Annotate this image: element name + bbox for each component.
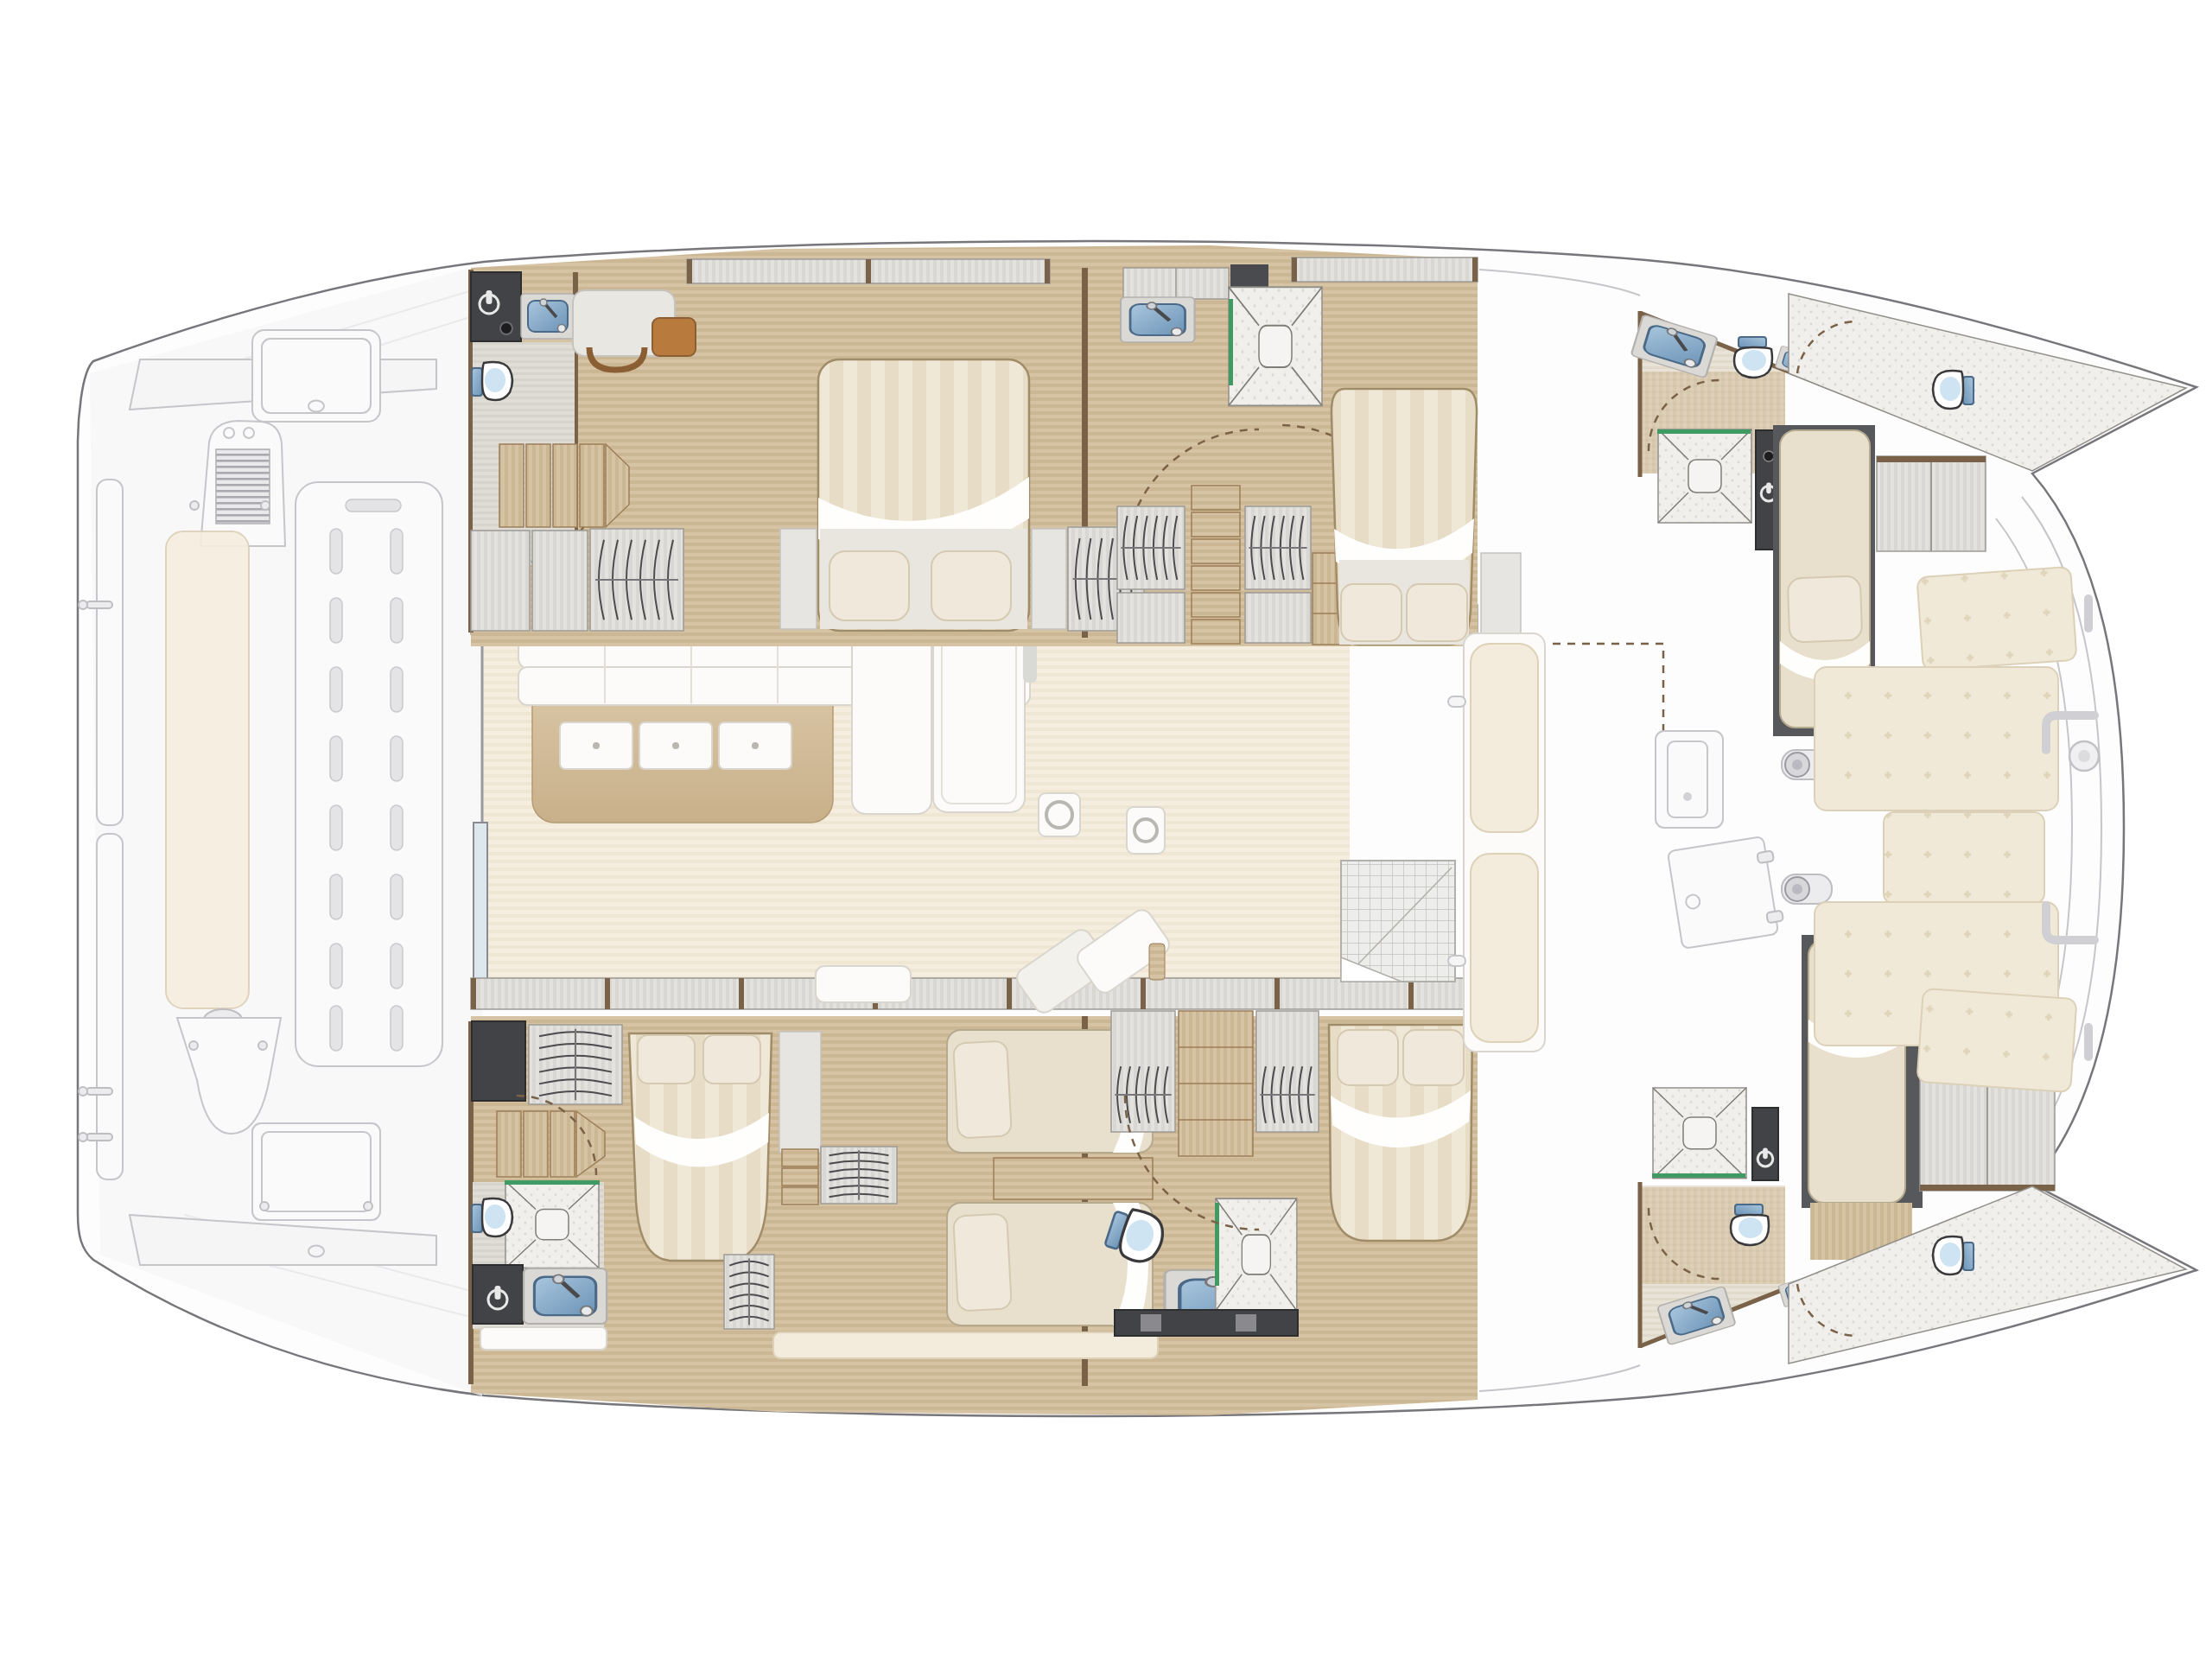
cabinet <box>471 531 530 631</box>
pillow <box>1403 1030 1464 1085</box>
wardrobe <box>590 529 683 631</box>
wc <box>1734 337 1772 378</box>
chair <box>652 318 696 356</box>
shelf <box>480 1327 607 1350</box>
sunpad <box>1916 988 2076 1092</box>
double-berth <box>1329 1025 1472 1241</box>
wet-locker <box>1752 1108 1778 1180</box>
deck-cabinet <box>1656 731 1723 828</box>
basin <box>524 1268 607 1324</box>
island-drawers <box>560 722 791 769</box>
sunpad <box>1916 567 2076 671</box>
cabinet <box>1117 593 1185 643</box>
catamaran-deck-plan <box>0 0 2212 1659</box>
sunpad-bench <box>1884 812 2044 904</box>
pillow <box>931 551 1011 620</box>
nightstand <box>1032 529 1066 629</box>
pillow <box>829 551 909 620</box>
locker <box>472 1021 525 1101</box>
basin <box>1121 297 1195 342</box>
wardrobe <box>1877 456 1986 551</box>
wardrobe <box>529 1025 622 1104</box>
hull-side-bench <box>773 1332 1158 1358</box>
starboard-hull-cabinet-strip <box>471 978 1478 1009</box>
shower <box>1652 1088 1746 1179</box>
threshold-mat <box>1341 861 1455 982</box>
pillow <box>1407 584 1467 641</box>
sliding-door <box>474 823 487 983</box>
wc <box>472 1198 512 1236</box>
basin <box>521 294 575 339</box>
shower <box>1229 287 1322 405</box>
pillow <box>1341 584 1402 641</box>
wet-locker <box>471 272 521 341</box>
wardrobe <box>821 1147 897 1204</box>
pillow <box>953 1213 1012 1311</box>
nightstand <box>780 529 817 629</box>
aft-deck <box>79 264 482 1396</box>
pillow <box>1788 576 1863 643</box>
wardrobe <box>1256 1011 1319 1132</box>
wc <box>472 362 512 400</box>
double-berth <box>818 359 1029 631</box>
winch <box>1782 874 1832 904</box>
sunpad <box>1815 667 2058 810</box>
deck-ring-hatch <box>1039 793 1080 836</box>
wc <box>1933 371 1974 409</box>
deck-ring-hatch-2 <box>1127 807 1165 854</box>
small-bench <box>816 966 911 1002</box>
pillow <box>638 1035 695 1084</box>
sofa-corner-arm <box>852 634 931 814</box>
cleat <box>79 1087 112 1096</box>
cabinet <box>1245 593 1311 643</box>
nightstand <box>779 1032 821 1153</box>
salon <box>471 605 1478 1016</box>
lounge-panel <box>296 482 442 1066</box>
shelves <box>1179 1011 1253 1156</box>
steps <box>497 1111 605 1177</box>
shower <box>505 1180 600 1268</box>
wet-locker <box>473 1265 523 1324</box>
deck-hatch-top <box>252 330 380 422</box>
wardrobe <box>1117 506 1185 589</box>
shower <box>1215 1198 1297 1311</box>
floor-plan <box>0 0 2212 1659</box>
forward-door <box>1668 836 1785 949</box>
table-base <box>2069 741 2099 771</box>
wardrobe <box>1245 506 1311 589</box>
transom-bench-top <box>97 480 123 825</box>
cleat <box>79 601 112 609</box>
cabinet <box>532 531 588 631</box>
double-berth <box>629 1033 772 1261</box>
dining-table <box>933 627 1037 812</box>
steps-small <box>782 1149 818 1205</box>
mid-shelf <box>994 1158 1153 1199</box>
double-berth <box>1332 389 1477 645</box>
shower <box>1657 429 1751 523</box>
transom-bench-bottom <box>97 834 123 1179</box>
cleat <box>79 1133 112 1141</box>
wc <box>1933 1236 1974 1274</box>
cockpit-bench-cushion <box>166 531 249 1008</box>
pillow <box>953 1040 1012 1138</box>
pillow <box>703 1035 760 1084</box>
nightstand <box>1481 553 1521 645</box>
wc <box>1731 1205 1769 1245</box>
pillow <box>1338 1030 1398 1085</box>
wardrobe <box>1111 1011 1175 1132</box>
hanging-locker <box>724 1255 774 1329</box>
steps <box>499 444 629 527</box>
